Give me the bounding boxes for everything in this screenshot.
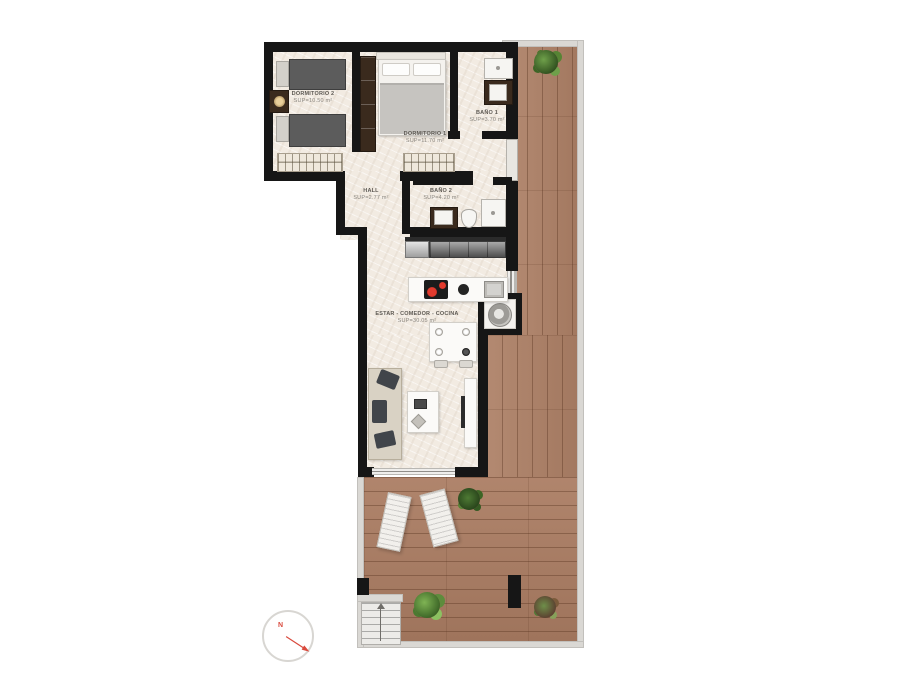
- coffee-table: [407, 391, 439, 433]
- label-living-name: ESTAR - COMEDOR - COCINA: [366, 311, 468, 318]
- stair-landing-border: [357, 594, 403, 602]
- bed2b-pillow: [276, 116, 289, 142]
- bed1-blanket: [380, 83, 444, 134]
- plant-icon-top-right: [534, 50, 558, 74]
- bed1-pillow-right: [413, 63, 441, 76]
- label-bedroom1-area: SUP=11.70 m²: [385, 138, 465, 145]
- label-bedroom1: DORMITORIO 1 SUP=11.70 m²: [385, 131, 465, 146]
- label-bath1: BAÑO 1 SUP=3.70 m²: [457, 110, 517, 125]
- kitchen-terrace-door: [507, 271, 517, 295]
- wall-right-mid: [506, 181, 518, 271]
- cooktop-burner-small: [439, 282, 446, 289]
- kitchen-cabinets: [429, 241, 506, 258]
- entry-door: [506, 139, 518, 181]
- terrace-border-right: [577, 40, 584, 648]
- single-bed-b: [289, 114, 346, 147]
- wall-bath2-top-b: [493, 177, 512, 185]
- plant-icon-stairs: [414, 592, 440, 618]
- wall-living-right: [478, 333, 488, 477]
- wall-bath2-bottom: [410, 227, 506, 237]
- stairs-center-line: [380, 606, 381, 641]
- kitchen-sink: [484, 281, 504, 298]
- label-bedroom2-name: DORMITORIO 2: [273, 91, 353, 98]
- plate-3: [435, 348, 443, 356]
- label-hall-name: HALL: [342, 188, 400, 195]
- plate-1: [435, 328, 443, 336]
- compass-icon: [262, 610, 314, 662]
- label-hall: HALL SUP=2.77 m²: [342, 188, 400, 203]
- label-bath2: BAÑO 2 SUP=4.20 m²: [412, 188, 470, 203]
- shower-bath2-drain: [491, 211, 495, 215]
- terrace-post: [357, 578, 369, 595]
- plant-icon-mid-terrace: [458, 488, 480, 510]
- terrace-pillar: [508, 575, 521, 608]
- dining-chair-2: [459, 360, 473, 368]
- wardrobe-tall-bedroom1: [360, 56, 376, 152]
- terrace-deck-mid: [487, 335, 577, 477]
- label-living-area: SUP=30.05 m²: [366, 318, 468, 325]
- label-bath1-name: BAÑO 1: [457, 110, 517, 117]
- cooktop-burner-large: [427, 287, 437, 297]
- label-bedroom2-area: SUP=10.50 m²: [273, 98, 353, 105]
- label-bath2-name: BAÑO 2: [412, 188, 470, 195]
- sliding-window: [372, 468, 455, 475]
- single-bed-a: [289, 59, 346, 90]
- compass-north-label: N: [278, 622, 283, 629]
- tv-console: [464, 378, 477, 448]
- kitchen-faucet: [458, 284, 469, 295]
- wall-top: [264, 42, 518, 52]
- plate-4: [462, 348, 470, 356]
- wall-bedroom-divider: [352, 52, 360, 152]
- plant-icon-bottom-right: [534, 596, 556, 618]
- shower-bath1-drain: [496, 66, 500, 70]
- label-bedroom2: DORMITORIO 2 SUP=10.50 m²: [273, 91, 353, 106]
- wall-hall-right: [402, 177, 410, 234]
- label-hall-area: SUP=2.77 m²: [342, 195, 400, 202]
- sink-bath1: [489, 84, 507, 101]
- sink-bath2: [434, 210, 453, 225]
- coffee-table-book: [414, 399, 427, 409]
- bed2a-pillow: [276, 61, 289, 87]
- label-bath2-area: SUP=4.20 m²: [412, 195, 470, 202]
- label-bedroom1-name: DORMITORIO 1: [385, 131, 465, 138]
- washing-machine: [488, 303, 512, 327]
- dining-chair-1: [434, 360, 448, 368]
- plate-2: [462, 328, 470, 336]
- kitchen-fridge: [405, 241, 429, 258]
- wall-bedroom2-bottom: [264, 171, 345, 181]
- floor-plan: N DORMITORIO 2 SUP=10.50 m² DORMITORIO 1…: [0, 0, 900, 675]
- tv: [461, 396, 465, 428]
- sofa-cushion-2: [372, 400, 387, 423]
- wall-bath2-top-a: [413, 177, 473, 185]
- label-bath1-area: SUP=3.70 m²: [457, 117, 517, 124]
- wall-hall-left: [336, 171, 345, 235]
- stairs-arrow: [377, 603, 385, 609]
- wall-living-left: [358, 227, 367, 477]
- bed1-pillow-left: [382, 63, 410, 76]
- wardrobe-bedroom1: [403, 153, 455, 172]
- wardrobe-bedroom2: [277, 153, 343, 172]
- label-living: ESTAR - COMEDOR - COCINA SUP=30.05 m²: [366, 311, 468, 326]
